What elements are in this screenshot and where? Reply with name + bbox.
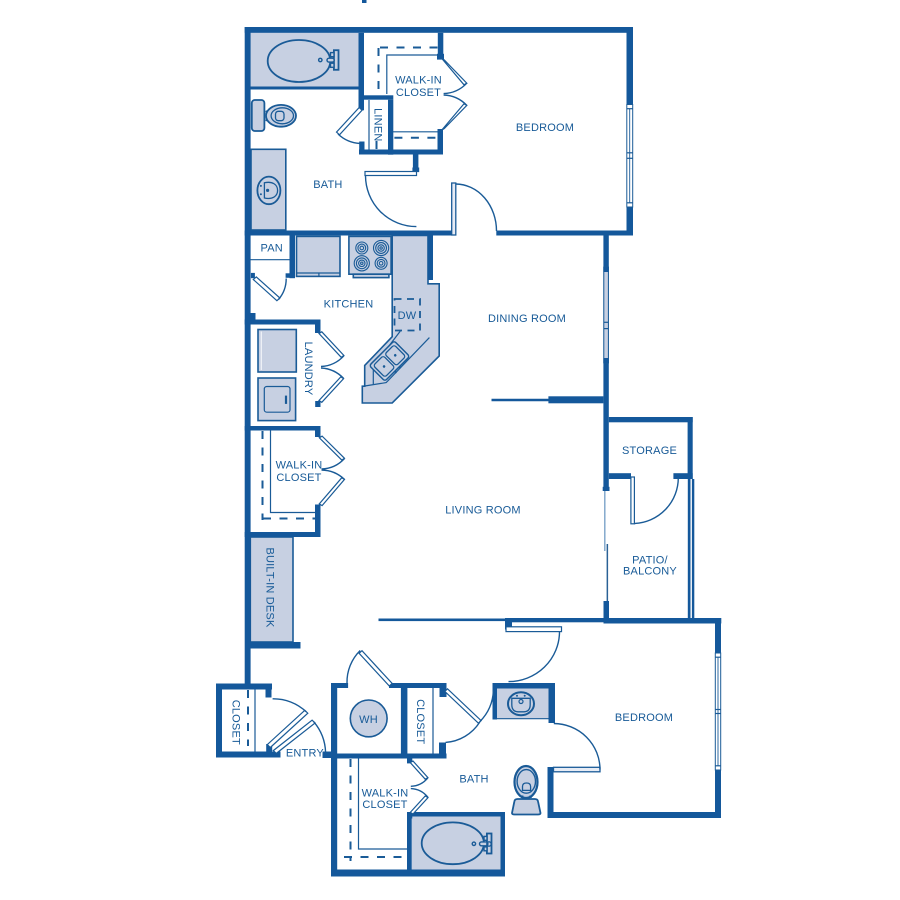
svg-text:CLOSET: CLOSET bbox=[396, 87, 441, 99]
svg-text:CLOSET: CLOSET bbox=[276, 472, 321, 484]
svg-text:WALK-IN: WALK-IN bbox=[395, 74, 442, 86]
svg-text:BATH: BATH bbox=[313, 179, 342, 191]
svg-text:KITCHEN: KITCHEN bbox=[324, 298, 374, 310]
svg-text:LAUNDRY: LAUNDRY bbox=[302, 342, 314, 396]
svg-text:WH: WH bbox=[359, 714, 378, 726]
svg-text:WALK-IN: WALK-IN bbox=[362, 788, 409, 800]
svg-text:BALCONY: BALCONY bbox=[623, 566, 677, 578]
svg-text:LIVING ROOM: LIVING ROOM bbox=[445, 505, 521, 517]
svg-text:BATH: BATH bbox=[459, 773, 488, 785]
svg-text:LINEN: LINEN bbox=[372, 108, 384, 141]
svg-text:DW: DW bbox=[398, 310, 417, 322]
svg-text:BEDROOM: BEDROOM bbox=[516, 122, 574, 134]
svg-text:BEDROOM: BEDROOM bbox=[615, 712, 673, 724]
svg-text:CLOSET: CLOSET bbox=[229, 700, 241, 745]
svg-text:STORAGE: STORAGE bbox=[622, 445, 677, 457]
svg-text:PAN: PAN bbox=[260, 243, 282, 255]
svg-text:CLOSET: CLOSET bbox=[414, 699, 426, 744]
svg-text:BUILT-IN DESK: BUILT-IN DESK bbox=[263, 547, 275, 627]
svg-text:DINING ROOM: DINING ROOM bbox=[488, 313, 566, 325]
svg-text:ENTRY: ENTRY bbox=[286, 748, 325, 760]
svg-text:WALK-IN: WALK-IN bbox=[276, 460, 323, 472]
svg-text:CLOSET: CLOSET bbox=[362, 799, 407, 811]
